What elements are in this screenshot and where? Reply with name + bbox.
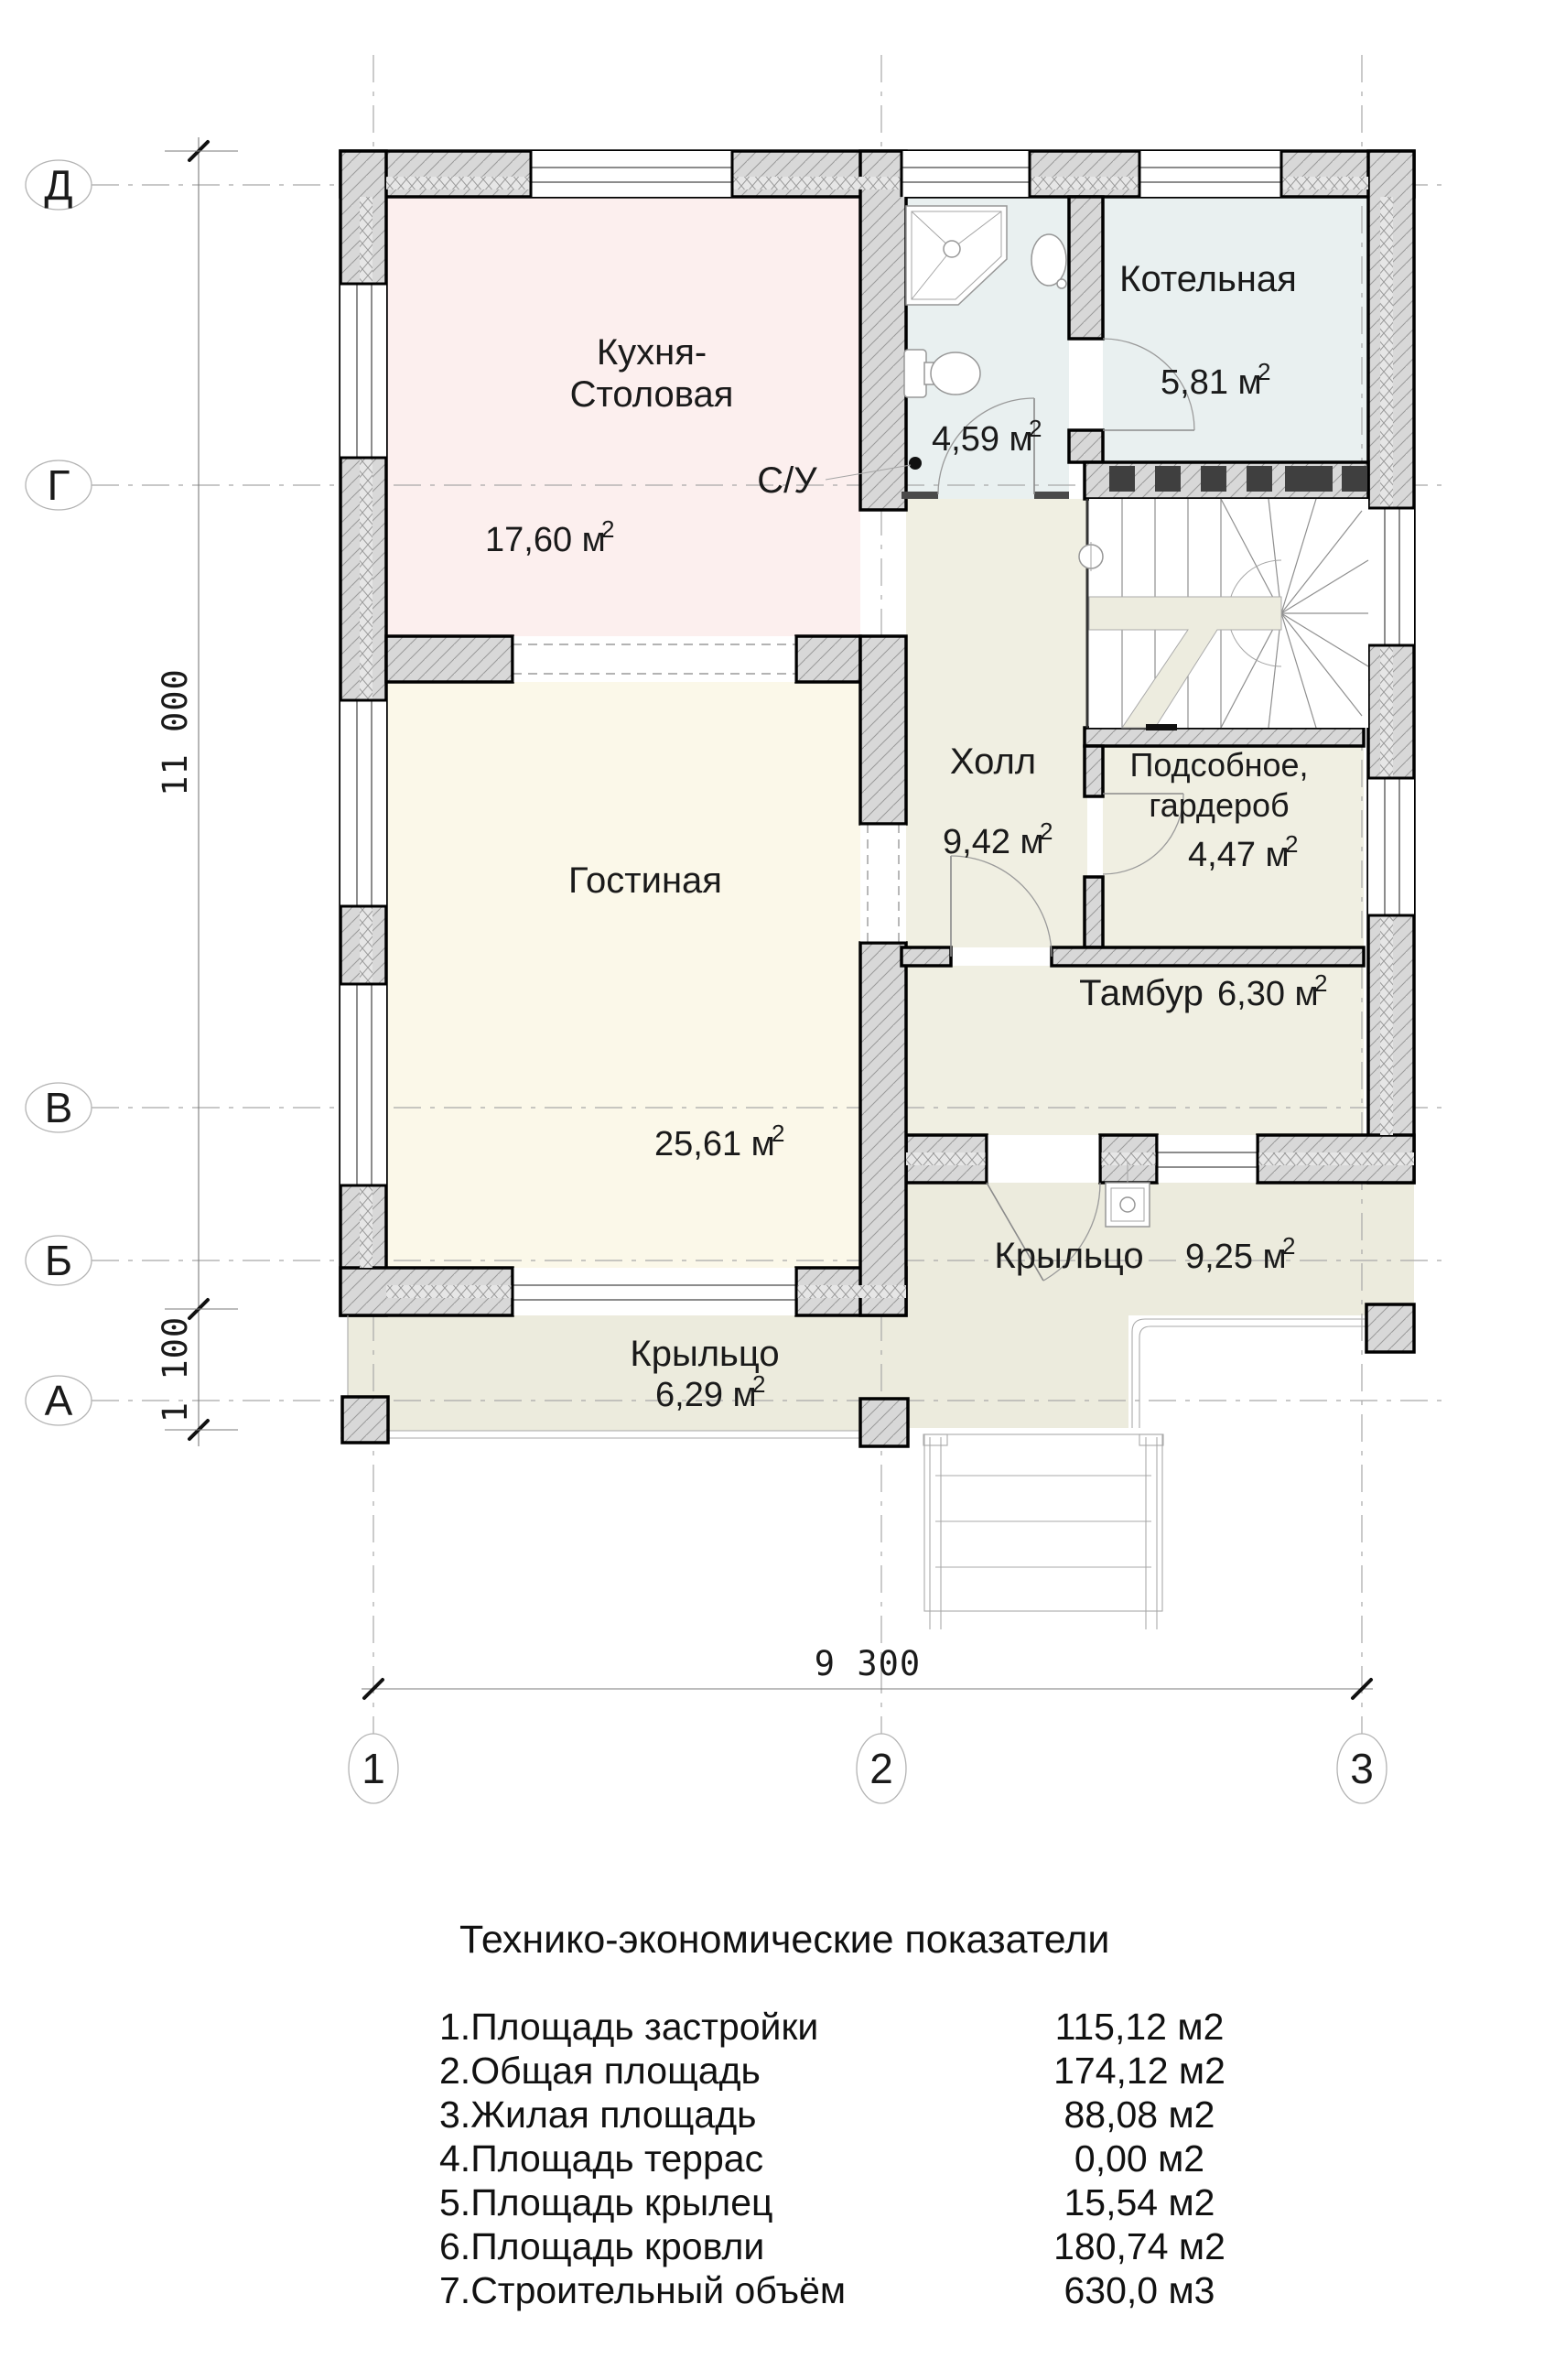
tep-row-label: 4.Площадь террас [439, 2137, 988, 2180]
axis-label-a: А [45, 1377, 73, 1424]
tep-row-value: 88,08 м2 [988, 2093, 1290, 2137]
wall-bath-boiler-bottom [1069, 430, 1103, 462]
window-living-left-1 [340, 700, 386, 906]
window-boiler-top [1139, 151, 1281, 197]
window-tambour-bottom [1157, 1135, 1258, 1183]
window-living-left-2 [340, 984, 386, 1185]
tep-row-label: 1.Площадь застройки [439, 2005, 988, 2049]
boiler-name: Котельная [1119, 259, 1297, 299]
hall-area: 9,42 м [943, 823, 1044, 861]
tep-row: 3.Жилая площадь 88,08 м2 [439, 2093, 1318, 2137]
hall-name: Холл [950, 741, 1036, 782]
exterior-steps [923, 1434, 1163, 1629]
dim-total-height: 11 000 [156, 668, 195, 796]
storage-name-1: Подсобное, [1129, 746, 1308, 784]
axis-label-3: 3 [1350, 1745, 1374, 1792]
wc-name: С/У [757, 460, 817, 501]
porch-left-name: Крыльцо [630, 1334, 779, 1374]
window-kitchen-top [531, 151, 732, 197]
boiler-area: 5,81 м [1161, 363, 1262, 402]
storage-area: 4,47 м [1188, 836, 1290, 874]
porch-right-area-sup: 2 [1282, 1232, 1295, 1260]
storage-area-sup: 2 [1285, 830, 1298, 858]
porch-left-area-sup: 2 [752, 1370, 765, 1398]
boiler-area-sup: 2 [1258, 358, 1270, 385]
living-area: 25,61 м [654, 1125, 775, 1163]
porch-left-area: 6,29 м [655, 1376, 757, 1414]
staircase [1079, 499, 1368, 730]
axis-label-1: 1 [362, 1745, 385, 1792]
window-living-bottom [513, 1268, 796, 1315]
tep-table: Технико-экономические показатели 1.Площа… [439, 1918, 1318, 2312]
porch-right-area: 9,25 м [1185, 1238, 1287, 1276]
window-bath-top [902, 151, 1030, 197]
tep-title: Технико-экономические показатели [459, 1918, 1318, 1963]
kitchen-area-sup: 2 [601, 515, 614, 543]
tep-row: 2.Общая площадь 174,12 м2 [439, 2049, 1318, 2093]
axis-label-2: 2 [869, 1745, 893, 1792]
wall-stair-storage [1085, 728, 1364, 746]
hall-room [906, 499, 1087, 947]
wall-living-hall-top [860, 636, 906, 824]
axis-label-b: Б [45, 1237, 72, 1284]
window-kitchen-left [340, 284, 386, 458]
axis-label-d: Д [44, 161, 72, 209]
window-stair-right [1368, 508, 1414, 645]
storage-name-2: гардероб [1149, 786, 1289, 824]
hall-area-sup: 2 [1040, 817, 1053, 845]
toilet [904, 350, 980, 397]
tep-row-label: 2.Общая площадь [439, 2049, 988, 2093]
tep-row: 5.Площадь крылец 15,54 м2 [439, 2180, 1318, 2224]
dim-total-width: 9 300 [815, 1644, 921, 1683]
boiler-room [1103, 197, 1368, 462]
tep-row: 6.Площадь кровли 180,74 м2 [439, 2224, 1318, 2268]
wall-kitchen-living-right [796, 636, 860, 682]
tep-row-value: 630,0 м3 [988, 2268, 1290, 2312]
stair-threshold [1146, 724, 1177, 730]
floor-drain-dot [909, 457, 922, 470]
wc-area-sup: 2 [1029, 415, 1042, 442]
wall-living-hall-bottom [860, 943, 906, 1315]
tep-row-value: 15,54 м2 [988, 2180, 1290, 2224]
axis-label-v: В [45, 1084, 73, 1131]
living-name: Гостиная [568, 860, 722, 901]
tep-row: 7.Строительный объём 630,0 м3 [439, 2268, 1318, 2312]
kitchen-name-1: Кухня- [597, 332, 707, 373]
tep-row-value: 180,74 м2 [988, 2224, 1290, 2268]
porch-right-slab [906, 1183, 1414, 1428]
kitchen-name-2: Столовая [570, 374, 734, 415]
wall-storage-west-top [1085, 746, 1103, 796]
tep-row: 4.Площадь террас 0,00 м2 [439, 2137, 1318, 2180]
kitchen-room [386, 197, 860, 636]
dim-porch-height: 1 100 [156, 1316, 195, 1423]
partition-bath-right [1034, 492, 1069, 499]
tep-row-value: 174,12 м2 [988, 2049, 1290, 2093]
tambour-name: Тамбур [1079, 973, 1204, 1013]
wall-hall-tambour-right [1052, 947, 1364, 966]
axis-label-g: Г [48, 461, 70, 509]
wall-bath-boiler-top [1069, 197, 1103, 339]
tep-row: 1.Площадь застройки 115,12 м2 [439, 2005, 1318, 2049]
tep-row-label: 3.Жилая площадь [439, 2093, 988, 2137]
step-railings [923, 1434, 1163, 1629]
wc-area: 4,59 м [932, 420, 1033, 459]
tep-row-label: 5.Площадь крылец [439, 2180, 988, 2224]
tambour-area: 6,30 м [1217, 975, 1319, 1013]
tep-row-value: 115,12 м2 [988, 2005, 1290, 2049]
wall-hall-tambour-left [902, 947, 951, 966]
porch-right-name: Крыльцо [994, 1236, 1143, 1276]
living-area-sup: 2 [772, 1120, 784, 1147]
tambour-area-sup: 2 [1314, 969, 1327, 997]
window-storage-right [1368, 778, 1414, 915]
tep-row-label: 6.Площадь кровли [439, 2224, 988, 2268]
tep-row-value: 0,00 м2 [988, 2137, 1290, 2180]
wall-kitchen-bath [860, 151, 906, 510]
kitchen-area: 17,60 м [485, 521, 606, 559]
wall-storage-west-bottom [1085, 877, 1103, 947]
partition-bath-left [902, 492, 938, 499]
tep-row-label: 7.Строительный объём [439, 2268, 988, 2312]
living-room [386, 682, 860, 1268]
wall-kitchen-living-left [386, 636, 513, 682]
porch-left-slab [348, 1315, 906, 1431]
